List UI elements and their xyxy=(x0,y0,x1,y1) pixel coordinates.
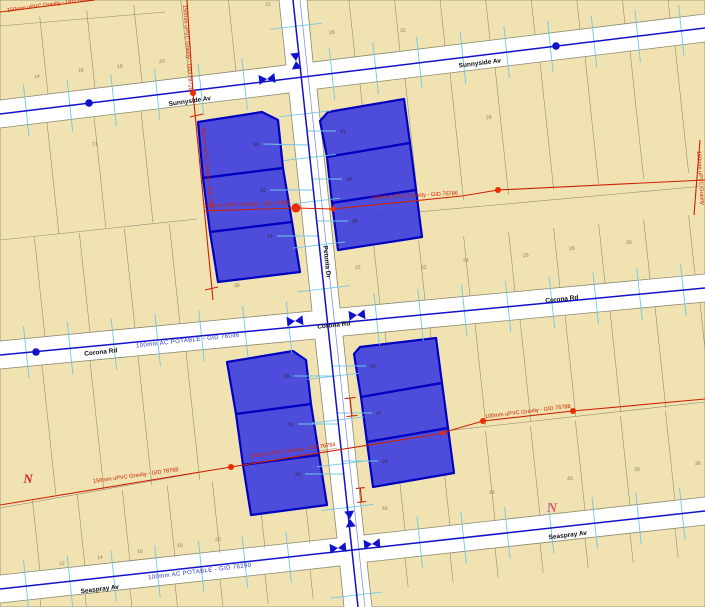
manhole-node-icon[interactable] xyxy=(330,206,335,211)
north-mark: N xyxy=(546,501,558,516)
lot-number: 45 xyxy=(489,490,495,497)
parcel-number: 30 xyxy=(253,142,259,149)
lot-number: 20 xyxy=(215,537,221,544)
manhole-node-icon[interactable] xyxy=(570,408,576,414)
parcel-number: 14 xyxy=(267,234,273,241)
lot-number: 30 xyxy=(626,240,632,247)
parcel-number: 47 xyxy=(376,411,382,418)
lot-number: 71 xyxy=(92,142,98,149)
selected-parcel[interactable] xyxy=(227,351,311,414)
lot-number: 36 xyxy=(695,461,701,468)
selected-parcel[interactable] xyxy=(210,222,300,282)
lot-number: 22 xyxy=(265,2,271,9)
manhole-node-icon[interactable] xyxy=(441,431,446,436)
lot-number: 16 xyxy=(78,68,84,75)
parcel-number: 35 xyxy=(284,374,290,381)
lot-number: 24 xyxy=(463,258,469,265)
lot-number: 12 xyxy=(59,561,65,568)
parcel-number: 35 xyxy=(352,219,358,226)
lot-number: 26 xyxy=(523,253,529,260)
parcel-number: 39 xyxy=(346,177,352,184)
lot-number: 29 xyxy=(486,115,492,122)
lot-number: 22 xyxy=(400,28,406,35)
lot-number: 22 xyxy=(421,265,427,272)
lot-number: 22 xyxy=(355,265,361,272)
lot-number: 46 xyxy=(382,506,388,513)
lot-number: 14 xyxy=(34,74,40,81)
map-viewport[interactable]: 1416182022282271362922222426283020181614… xyxy=(0,0,705,607)
parcel-number: 55 xyxy=(370,364,376,371)
lot-number: 16 xyxy=(137,549,143,556)
lot-number: 36 xyxy=(234,283,240,290)
lot-number: 38 xyxy=(634,467,640,474)
lot-number: 18 xyxy=(177,543,183,550)
manhole-node-icon[interactable] xyxy=(292,204,301,213)
lot-number: 20 xyxy=(159,59,165,66)
lot-number: 18 xyxy=(117,64,123,71)
manhole-node-icon[interactable] xyxy=(495,187,501,193)
lot-number: 28 xyxy=(569,246,575,253)
parcel-number: 12 xyxy=(260,188,266,195)
water-node-icon[interactable] xyxy=(32,348,40,356)
lot-number: 40 xyxy=(567,476,573,483)
north-mark: N xyxy=(22,471,33,486)
parcel-number: 41 xyxy=(288,422,294,429)
water-node-icon[interactable] xyxy=(552,42,560,50)
parcel-number: 41 xyxy=(340,129,346,136)
parcel-number: 33 xyxy=(382,459,388,466)
manhole-node-icon[interactable] xyxy=(228,464,234,470)
lot-number: 28 xyxy=(329,30,335,37)
water-node-icon[interactable] xyxy=(85,99,93,107)
parcel-number: 43 xyxy=(295,472,301,479)
gis-map-canvas[interactable]: 1416182022282271362922222426283020181614… xyxy=(0,0,705,607)
selected-parcel[interactable] xyxy=(243,455,327,515)
lot-number: 14 xyxy=(97,555,103,562)
manhole-node-icon[interactable] xyxy=(190,90,196,96)
